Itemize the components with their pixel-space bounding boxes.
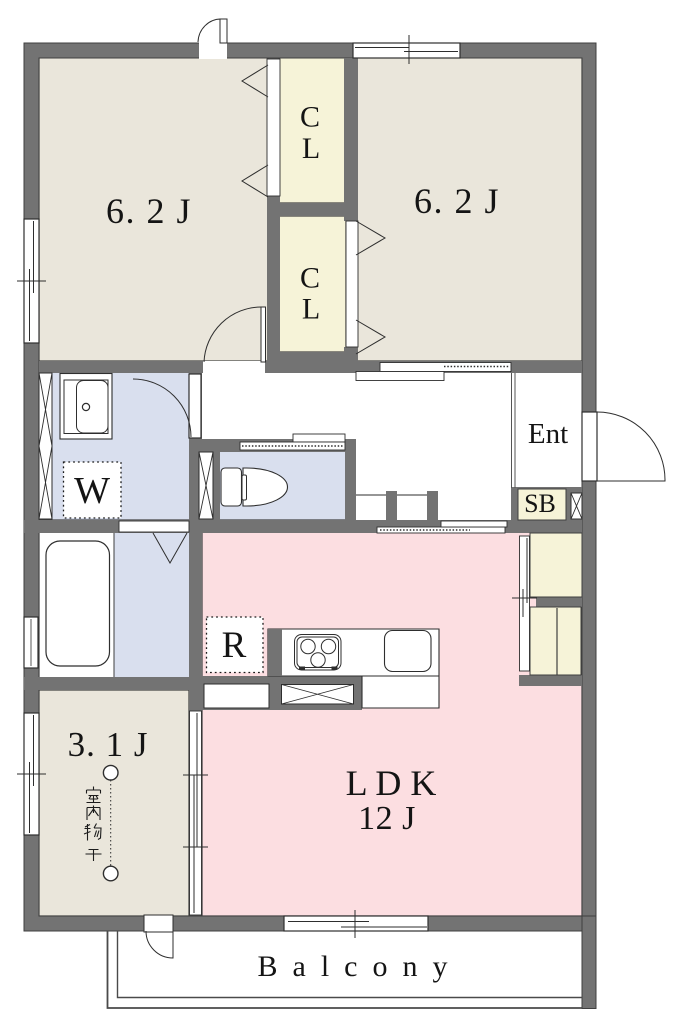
svg-text:6. 2 J: 6. 2 J xyxy=(414,181,500,221)
svg-text:SB: SB xyxy=(524,489,556,518)
svg-text:12 J: 12 J xyxy=(358,800,416,837)
svg-text:3. 1 J: 3. 1 J xyxy=(68,725,149,764)
svg-text:R: R xyxy=(222,625,247,666)
svg-text:Ent: Ent xyxy=(528,418,568,450)
svg-text:W: W xyxy=(74,470,110,512)
svg-text:C: C xyxy=(300,262,320,295)
svg-text:L: L xyxy=(302,132,320,165)
svg-text:Balcony: Balcony xyxy=(258,950,463,983)
svg-text:C: C xyxy=(300,101,320,134)
svg-text:L: L xyxy=(302,293,320,326)
svg-text:L D K: L D K xyxy=(346,763,437,803)
svg-text:6. 2 J: 6. 2 J xyxy=(106,191,192,231)
